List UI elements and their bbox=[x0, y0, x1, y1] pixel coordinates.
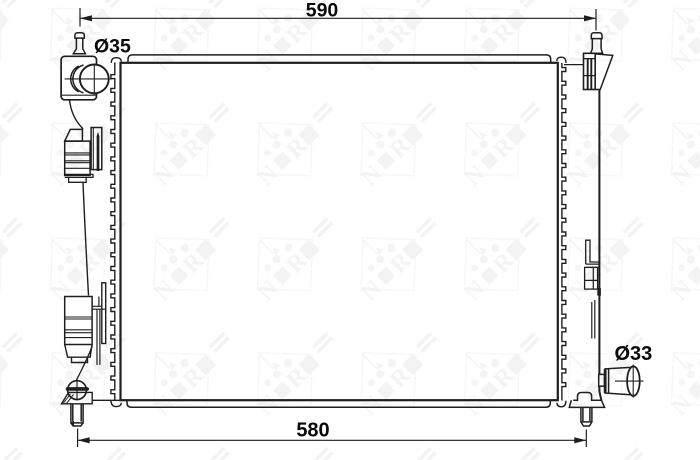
svg-text:590: 590 bbox=[306, 0, 339, 22]
svg-text:580: 580 bbox=[296, 420, 329, 442]
svg-text:Ø33: Ø33 bbox=[615, 343, 653, 365]
svg-text:Ø35: Ø35 bbox=[94, 36, 131, 58]
